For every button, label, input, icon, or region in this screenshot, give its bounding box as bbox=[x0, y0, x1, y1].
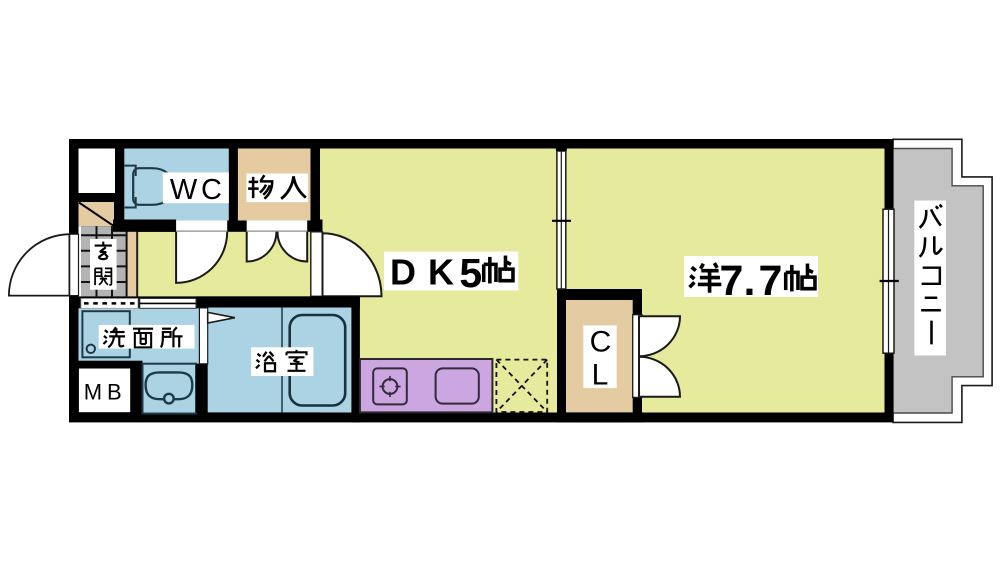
svg-text:.: . bbox=[744, 257, 756, 305]
svg-text:D: D bbox=[390, 252, 416, 293]
svg-text:B: B bbox=[107, 380, 122, 405]
svg-text:L: L bbox=[592, 359, 609, 392]
svg-text:M: M bbox=[84, 380, 102, 405]
svg-text:7: 7 bbox=[759, 257, 783, 305]
svg-text:C: C bbox=[590, 326, 612, 359]
svg-text:C: C bbox=[201, 174, 222, 206]
svg-text:5: 5 bbox=[459, 250, 482, 296]
svg-text:7: 7 bbox=[720, 257, 744, 305]
svg-text:W: W bbox=[170, 174, 198, 206]
svg-text:K: K bbox=[428, 252, 454, 293]
